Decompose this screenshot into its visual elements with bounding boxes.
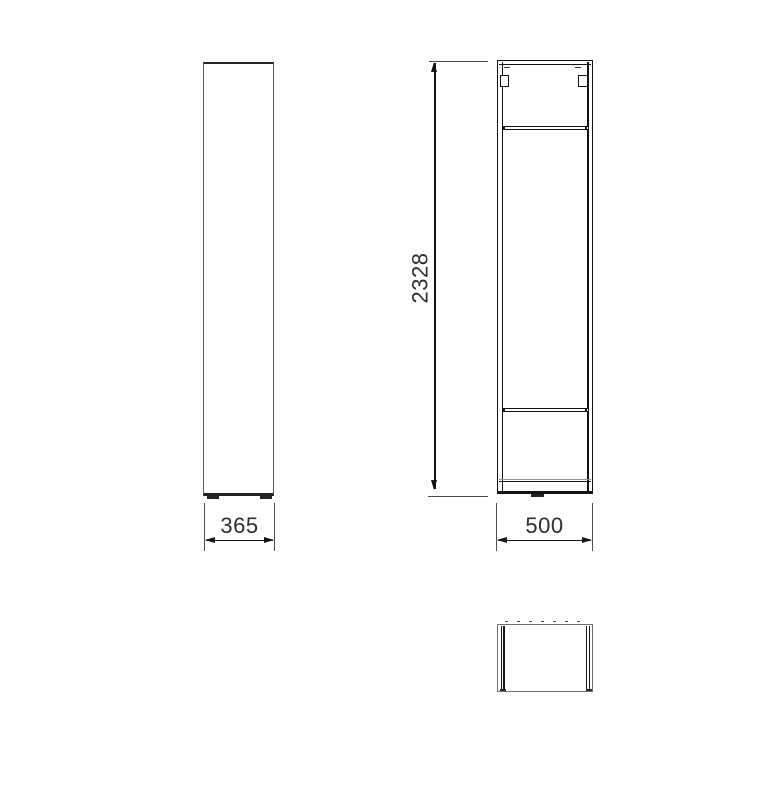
shelf-cap [503,408,505,412]
arrowhead-right-icon [264,537,274,543]
top-view-side-panel-left-a [501,626,502,691]
top-view-side-panel-right-a [586,626,587,691]
arrowhead-left-icon [497,537,507,543]
arrowhead-up-icon [431,62,437,72]
wall-bracket-right [578,75,588,87]
front-view-foot-left [207,496,219,499]
top-view-side-panel-left-b [503,626,504,691]
top-view-bottom-cap-right [586,689,592,691]
arrowhead-right-icon [582,537,592,543]
arrowhead-left-icon [205,537,215,543]
front-view-outline [203,62,274,496]
top-view-bottom-cap-left [500,689,506,691]
dimension-line-shaft [498,540,591,541]
shelf-cap [585,408,587,412]
top-view-outline [497,624,592,692]
side-view-top-dash-left [504,67,510,68]
side-view-bottom-gray-line [499,479,591,480]
front-view-foot-right [260,496,272,499]
side-view-top-dash-right [575,67,581,68]
shelf-cap [585,126,587,130]
side-view-inner-panel-right [587,62,588,493]
depth-dimension-label: 500 [497,515,592,537]
top-view-hidden-edge-dashes [505,621,585,622]
height-dimension-label-wrap: 2328 [398,251,442,304]
side-view-shelf-lower [503,408,588,412]
width-dimension-label: 365 [203,515,276,537]
side-view-shelf-upper [503,126,588,130]
arrowhead-down-icon [431,480,437,490]
side-view-top-panel-line [499,64,591,65]
technical-drawing-canvas: 365 500 2328 [0,0,764,800]
side-view-bottom-panel-line [499,481,591,482]
dimension-line-shaft [206,540,273,541]
top-view-side-panel-right-b [589,626,590,691]
height-extension-line-bottom [428,496,488,497]
side-view-foot [531,494,544,497]
wall-bracket-left [500,75,510,87]
height-dimension-label: 2328 [407,252,433,303]
shelf-cap [503,126,505,130]
